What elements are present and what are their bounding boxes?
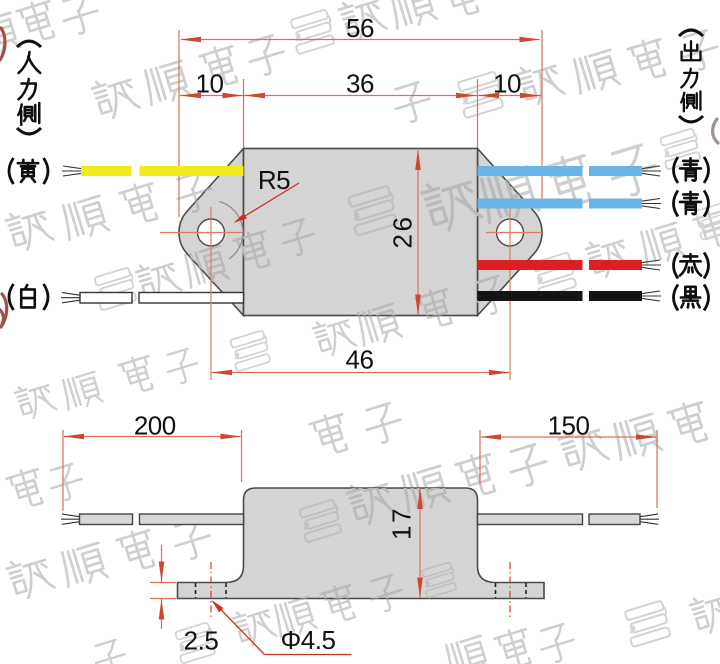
svg-text:10: 10 bbox=[196, 69, 224, 99]
svg-text:36: 36 bbox=[346, 69, 374, 99]
svg-text:10: 10 bbox=[493, 69, 521, 99]
svg-text:56: 56 bbox=[346, 13, 374, 43]
svg-text:Φ4.5: Φ4.5 bbox=[281, 625, 336, 655]
svg-text:200: 200 bbox=[134, 411, 176, 441]
svg-text:R5: R5 bbox=[258, 165, 290, 195]
svg-text:26: 26 bbox=[388, 215, 418, 249]
svg-text:150: 150 bbox=[548, 411, 590, 441]
svg-text:46: 46 bbox=[346, 345, 374, 375]
svg-text:2.5: 2.5 bbox=[184, 626, 219, 656]
svg-text:17: 17 bbox=[387, 506, 417, 540]
